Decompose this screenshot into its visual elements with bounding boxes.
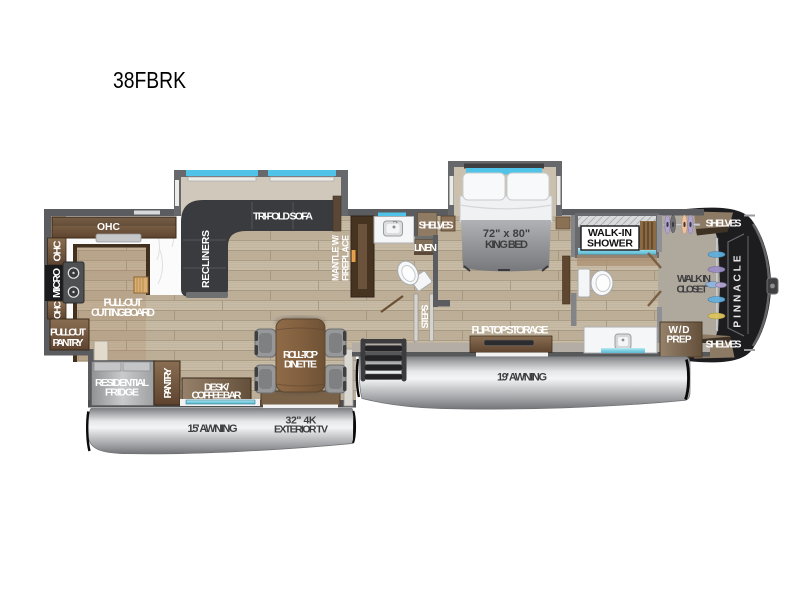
svg-text:PANTRY: PANTRY bbox=[162, 368, 174, 399]
svg-text:15' AWNING: 15' AWNING bbox=[188, 423, 238, 435]
svg-text:19' AWNING: 19' AWNING bbox=[497, 372, 547, 384]
svg-text:DINETTE: DINETTE bbox=[284, 359, 317, 371]
svg-text:STEPS: STEPS bbox=[420, 305, 431, 329]
svg-text:OHC: OHC bbox=[53, 301, 64, 319]
svg-text:SHELVES: SHELVES bbox=[706, 218, 742, 230]
svg-text:SHELVES: SHELVES bbox=[706, 339, 742, 351]
svg-text:PREP: PREP bbox=[667, 335, 692, 346]
svg-text:FIREPLACE: FIREPLACE bbox=[341, 235, 351, 281]
svg-text:TRI-FOLD SOFA: TRI-FOLD SOFA bbox=[253, 211, 313, 223]
svg-text:38FBRK: 38FBRK bbox=[113, 67, 187, 93]
svg-text:RECLINERS: RECLINERS bbox=[200, 230, 212, 288]
svg-text:EXTERIOR TV: EXTERIOR TV bbox=[274, 424, 328, 436]
svg-text:FRIDGE: FRIDGE bbox=[105, 387, 139, 399]
svg-text:KING BED: KING BED bbox=[485, 239, 528, 251]
svg-text:FLIP-TOP STORAGE: FLIP-TOP STORAGE bbox=[472, 325, 549, 337]
svg-text:PANTRY: PANTRY bbox=[53, 337, 84, 349]
svg-text:LINEN: LINEN bbox=[414, 242, 437, 254]
svg-text:MICRO: MICRO bbox=[51, 268, 63, 298]
svg-text:OHC: OHC bbox=[52, 240, 64, 261]
svg-text:PINNACLE: PINNACLE bbox=[733, 252, 744, 327]
svg-text:OHC: OHC bbox=[97, 221, 120, 233]
svg-text:MANTLE W/: MANTLE W/ bbox=[331, 235, 341, 281]
svg-text:SHOWER: SHOWER bbox=[587, 238, 633, 250]
svg-text:CUTTING BOARD: CUTTING BOARD bbox=[91, 307, 155, 319]
svg-text:CLOSET: CLOSET bbox=[677, 284, 709, 296]
svg-text:SHELVES: SHELVES bbox=[419, 220, 454, 232]
svg-text:COFFEE BAR: COFFEE BAR bbox=[192, 390, 242, 402]
